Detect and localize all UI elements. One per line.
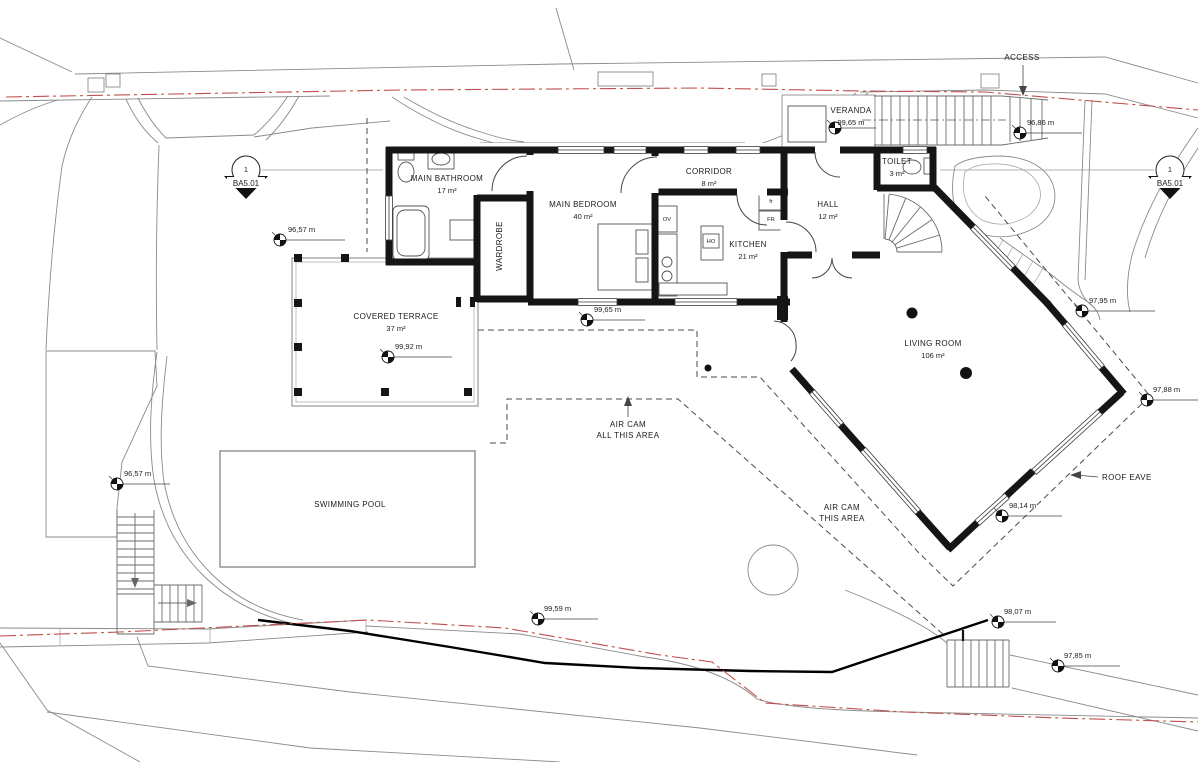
air-cam-this-label: AIR CAM xyxy=(824,503,860,512)
air-cam-arrow xyxy=(624,396,632,406)
roof-eave-label: ROOF EAVE xyxy=(1102,473,1152,482)
elevation-marker: 96,57 m xyxy=(272,225,345,246)
road-structure xyxy=(598,72,653,86)
elevation-value: 99,59 m xyxy=(544,604,571,613)
elevation-marker: 98,14 m xyxy=(994,501,1062,522)
svg-text:21 m²: 21 m² xyxy=(738,252,758,261)
svg-text:ALL THIS AREA: ALL THIS AREA xyxy=(596,431,659,440)
vanity xyxy=(450,220,474,240)
kitchen-sink xyxy=(662,257,672,267)
svg-text:BA5.01: BA5.01 xyxy=(1157,179,1184,188)
svg-text:MAIN BEDROOM: MAIN BEDROOM xyxy=(549,200,617,209)
section-marker-left: 1 BA5.01 xyxy=(224,156,268,199)
terrain-break-line xyxy=(258,620,988,672)
svg-text:COVERED TERRACE: COVERED TERRACE xyxy=(353,312,438,321)
stairs-southwest xyxy=(117,510,202,634)
appliance-label: OV xyxy=(663,217,672,223)
floor-plan-drawing: ACCESS ROOF EAVE AIR CAM ALL THIS AREA A… xyxy=(0,0,1200,762)
svg-text:TOILET: TOILET xyxy=(882,157,912,166)
svg-text:8 m²: 8 m² xyxy=(702,179,718,188)
utility-box xyxy=(762,74,776,86)
elevation-value: 98,07 m xyxy=(1004,607,1031,616)
stairs-southeast xyxy=(947,630,1009,687)
elevation-marker: 97,85 m xyxy=(1050,651,1120,672)
elevation-value: 99,65 m xyxy=(594,305,621,314)
svg-text:THIS AREA: THIS AREA xyxy=(819,514,865,523)
covered-terrace-platform xyxy=(292,254,478,406)
svg-text:17 m²: 17 m² xyxy=(437,186,457,195)
svg-text:1: 1 xyxy=(244,165,248,174)
utility-box xyxy=(106,74,120,87)
wall-corner-block xyxy=(777,296,788,320)
svg-text:BA5.01: BA5.01 xyxy=(233,179,260,188)
svg-text:SWIMMING POOL: SWIMMING POOL xyxy=(314,500,386,509)
svg-text:VERANDA: VERANDA xyxy=(830,106,871,115)
swimming-pool-outline xyxy=(220,451,475,567)
elevation-value: 96,57 m xyxy=(124,469,151,478)
elevation-value: 96,86 m xyxy=(1027,118,1054,127)
svg-text:MAIN BATHROOM: MAIN BATHROOM xyxy=(411,174,483,183)
room-label-swimming-pool: SWIMMING POOL xyxy=(314,500,386,509)
appliance-label: FR xyxy=(767,217,775,223)
elevation-value: 97,95 m xyxy=(1089,296,1116,305)
svg-text:HALL: HALL xyxy=(817,200,839,209)
svg-text:CORRIDOR: CORRIDOR xyxy=(686,167,732,176)
svg-text:37 m²: 37 m² xyxy=(386,324,406,333)
roof-eave-arrow xyxy=(1070,471,1081,479)
utility-box xyxy=(981,74,999,88)
section-marker-right: 1 BA5.01 xyxy=(1148,156,1192,199)
svg-text:99,65 m: 99,65 m xyxy=(837,118,864,127)
elevation-value: 96,57 m xyxy=(288,225,315,234)
elevation-marker: 98,07 m xyxy=(990,607,1056,628)
elevation-value: 97,88 m xyxy=(1153,385,1180,394)
svg-text:WARDROBE: WARDROBE xyxy=(495,221,504,271)
elevation-value: 98,14 m xyxy=(1009,501,1036,510)
svg-text:LIVING ROOM: LIVING ROOM xyxy=(904,339,961,348)
tree xyxy=(748,545,798,595)
appliance-label: fr xyxy=(769,199,773,205)
elevation-marker: 99,59 m xyxy=(530,604,598,625)
air-cam-all-label: AIR CAM xyxy=(610,420,646,429)
elevation-marker: 97,88 m xyxy=(1139,385,1198,406)
neighbor-plot xyxy=(46,351,157,537)
elevation-marker: 96,86 m xyxy=(1012,118,1082,139)
svg-text:40 m²: 40 m² xyxy=(573,212,593,221)
svg-text:KITCHEN: KITCHEN xyxy=(729,240,767,249)
appliance-label: HO xyxy=(707,239,716,245)
elevation-marker: 96,57 m xyxy=(109,469,170,490)
utility-box xyxy=(88,78,104,92)
svg-text:106 m²: 106 m² xyxy=(921,351,945,360)
svg-text:3 m²: 3 m² xyxy=(890,169,906,178)
elevation-value: 97,85 m xyxy=(1064,651,1091,660)
elevation-value: 99,92 m xyxy=(395,342,422,351)
svg-text:12 m²: 12 m² xyxy=(818,212,838,221)
elevation-marker: 97,95 m xyxy=(1074,296,1155,317)
site-plan-page: ACCESS ROOF EAVE AIR CAM ALL THIS AREA A… xyxy=(0,0,1200,762)
svg-text:1: 1 xyxy=(1168,165,1172,174)
access-label: ACCESS xyxy=(1004,53,1039,62)
veranda-feature xyxy=(788,106,826,142)
room-label-wardrobe: WARDROBE xyxy=(495,221,504,271)
